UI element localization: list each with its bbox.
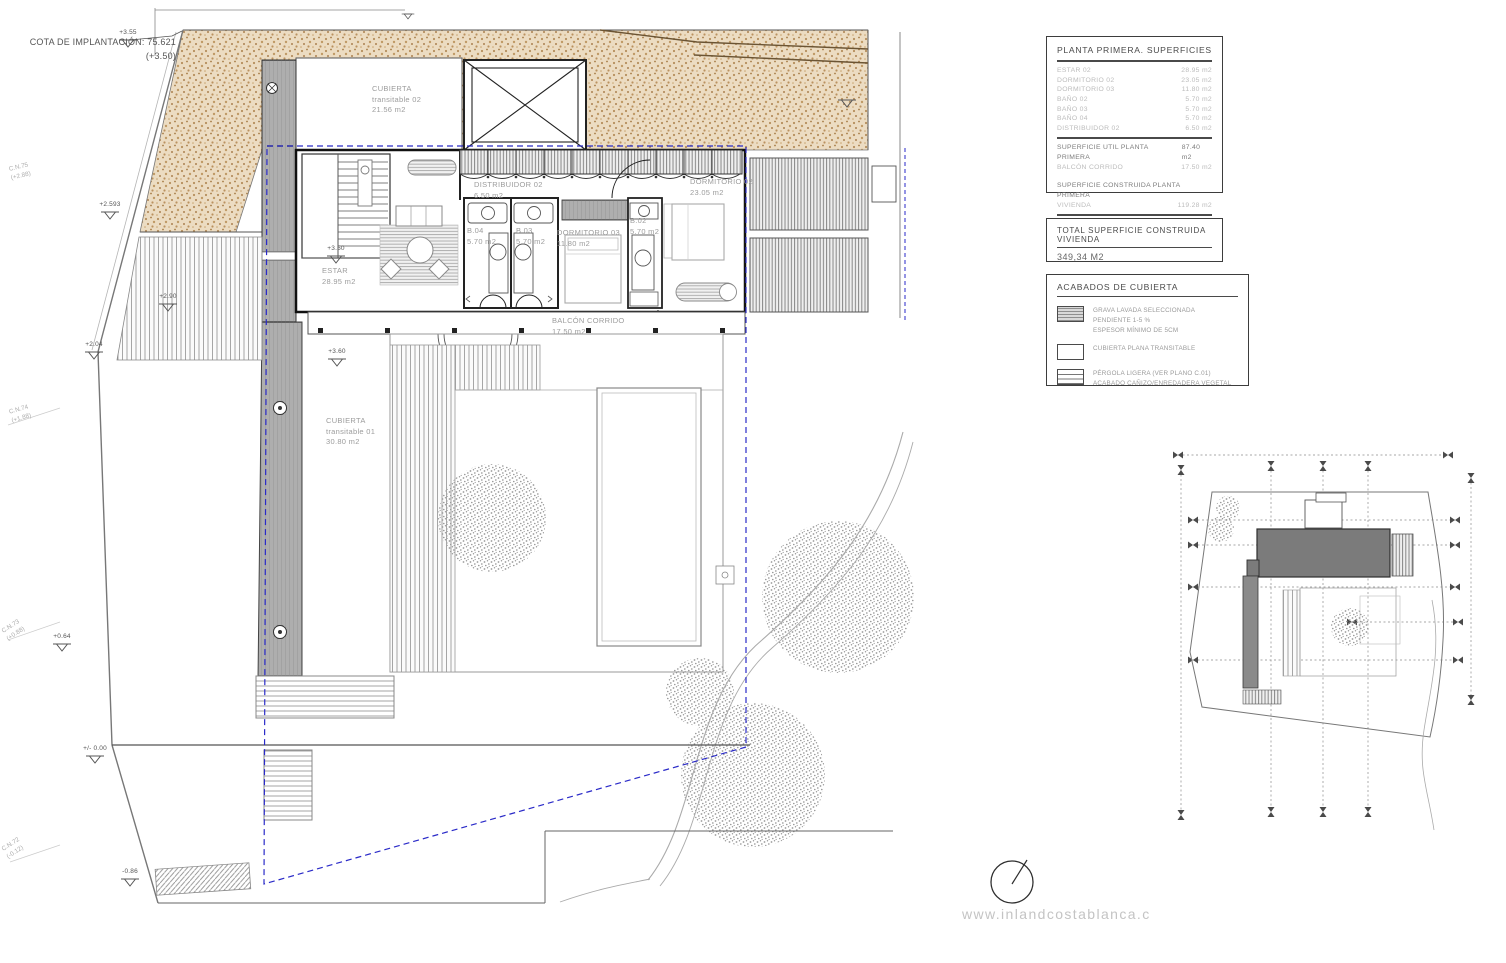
room-area: 17.50 m2: [552, 327, 625, 338]
divider: [1057, 296, 1238, 297]
row-label: ESTAR 02: [1057, 66, 1091, 76]
room-label-estar: ESTAR 28.95 m2: [322, 266, 356, 287]
pergola-band: [460, 150, 742, 179]
acabados-title: ACABADOS DE CUBIERTA: [1057, 282, 1238, 295]
table-row-vivienda: VIVIENDA119.28 m2: [1057, 201, 1212, 211]
courtyard: [390, 334, 734, 672]
table-row: BAÑO 045.70 m2: [1057, 114, 1212, 124]
total-vivienda-box: TOTAL SUPERFICIE CONSTRUIDA VIVIENDA 349…: [1046, 218, 1223, 262]
room-name: B.04: [467, 226, 496, 237]
pool: [597, 388, 701, 646]
divider: [1057, 60, 1212, 62]
room-area: 11.80 m2: [557, 239, 620, 250]
row-label: BAÑO 03: [1057, 105, 1088, 115]
cota-line2: (+3.50): [26, 50, 176, 64]
room-name: DORMITORIO 02: [690, 177, 753, 188]
tree: [681, 703, 825, 847]
row-value: 5.70 m2: [1185, 114, 1212, 124]
tree: [438, 464, 546, 572]
legend-line: GRAVA LAVADA SELECCIONADA: [1093, 306, 1195, 316]
room-name: CUBIERTA: [372, 84, 421, 95]
legend-line: ESPESOR MÍNIMO DE 5CM: [1093, 326, 1195, 336]
room-name: B.03: [516, 226, 545, 237]
room-area: 23.05 m2: [690, 188, 753, 199]
room-area: 21.56 m2: [372, 105, 421, 116]
row-value: 23.05 m2: [1181, 76, 1212, 86]
tree: [762, 521, 914, 673]
acabados-legend: ACABADOS DE CUBIERTA GRAVA LAVADA SELECC…: [1046, 274, 1249, 386]
room-name: ESTAR: [322, 266, 356, 277]
legend-line: ACABADO CAÑIZO/ENREDADERA VEGETAL: [1093, 379, 1231, 389]
legend-line: CUBIERTA PLANA TRANSITABLE: [1093, 344, 1195, 354]
room-name-2: transitable 01: [326, 427, 375, 438]
room-area: 28.95 m2: [322, 277, 356, 288]
row-label: VIVIENDA: [1057, 201, 1091, 211]
room-name: BALCÓN CORRIDO: [552, 316, 625, 327]
row-label: DORMITORIO 02: [1057, 76, 1114, 86]
table-row: DISTRIBUIDOR 026.50 m2: [1057, 124, 1212, 134]
level-label: +3.50: [314, 245, 358, 252]
row-value: 28.95 m2: [1181, 66, 1212, 76]
watermark: www.inlandcostablanca.c: [962, 906, 1151, 922]
room-label-b04: B.04 5.70 m2: [467, 226, 496, 247]
room-name: B.02: [630, 216, 659, 227]
legend-item-grava: GRAVA LAVADA SELECCIONADA PENDIENTE 1-5 …: [1057, 306, 1238, 335]
table-row-util: SUPERFICIE UTIL PLANTA PRIMERA87.40 m2: [1057, 143, 1212, 162]
table-row: ESTAR 0228.95 m2: [1057, 66, 1212, 76]
room-area: 5.70 m2: [467, 237, 496, 248]
level-label: +3.60: [315, 348, 359, 355]
room-label-distribuidor-02: DISTRIBUIDOR 02 6.50 m2: [474, 180, 543, 201]
row-value: 87.40 m2: [1182, 143, 1212, 162]
level-label: +/- 0.00: [73, 745, 117, 752]
room-label-b03: B.03 5.70 m2: [516, 226, 545, 247]
table-row: DORMITORIO 0223.05 m2: [1057, 76, 1212, 86]
cota-line1: COTA DE IMPLANTACIÓN: 75.621: [26, 36, 176, 50]
legend-item-cubierta-plana: CUBIERTA PLANA TRANSITABLE: [1057, 344, 1238, 360]
divider: [1057, 214, 1212, 216]
row-label: BAÑO 02: [1057, 95, 1088, 105]
total-vivienda-title: TOTAL SUPERFICIE CONSTRUIDA VIVIENDA: [1057, 226, 1212, 248]
row-value: 5.70 m2: [1185, 95, 1212, 105]
plan-drawing: [0, 0, 1506, 963]
bedroom-03: [562, 200, 628, 303]
row-label: BALCÓN CORRIDO: [1057, 163, 1123, 173]
room-label-cubierta-01: CUBIERTA transitable 01 30.80 m2: [326, 416, 375, 448]
divider: [1057, 137, 1212, 139]
key-site-plan: [1173, 452, 1475, 831]
row-value: 11.80 m2: [1182, 85, 1212, 95]
table-row-balcon: BALCÓN CORRIDO17.50 m2: [1057, 163, 1212, 173]
level-label: +2.90: [146, 293, 190, 300]
table-row: BAÑO 035.70 m2: [1057, 105, 1212, 115]
construida-header: SUPERFICIE CONSTRUIDA PLANTA PRIMERA: [1057, 181, 1212, 200]
row-label: DISTRIBUIDOR 02: [1057, 124, 1120, 134]
room-label-balcon-corrido: BALCÓN CORRIDO 17.50 m2: [552, 316, 625, 337]
level-label: +2.04: [72, 341, 116, 348]
superficies-title: PLANTA PRIMERA. SUPERFICIES: [1057, 45, 1212, 58]
north-indicator-icon: [991, 860, 1033, 903]
row-value: 5.70 m2: [1185, 105, 1212, 115]
room-label-cubierta-02: CUBIERTA transitable 02 21.56 m2: [372, 84, 421, 116]
room-area: 5.70 m2: [630, 227, 659, 238]
row-value: 6.50 m2: [1185, 124, 1212, 134]
room-label-dormitorio-02: DORMITORIO 02 23.05 m2: [690, 177, 753, 198]
level-label: +3.55: [106, 29, 150, 36]
room-name: DORMITORIO 03: [557, 228, 620, 239]
key-building: [1257, 529, 1390, 577]
row-value: 119.28 m2: [1178, 201, 1212, 211]
level-label: +0.64: [40, 633, 84, 640]
room-name: DISTRIBUIDOR 02: [474, 180, 543, 191]
room-area: 30.80 m2: [326, 437, 375, 448]
table-row: BAÑO 025.70 m2: [1057, 95, 1212, 105]
room-label-b02: B.02 5.70 m2: [630, 216, 659, 237]
total-vivienda-value: 349,34 M2: [1057, 252, 1212, 262]
legend-line: PENDIENTE 1-5 %: [1093, 316, 1195, 326]
plan-sheet: COTA DE IMPLANTACIÓN: 75.621 (+3.50) +3.…: [0, 0, 1506, 963]
room-name: CUBIERTA: [326, 416, 375, 427]
row-label: BAÑO 04: [1057, 114, 1088, 124]
staircase: [302, 154, 390, 258]
room-name-2: transitable 02: [372, 95, 421, 106]
table-row: DORMITORIO 0311.80 m2: [1057, 85, 1212, 95]
room-area: 5.70 m2: [516, 237, 545, 248]
superficies-table: PLANTA PRIMERA. SUPERFICIES ESTAR 0228.9…: [1046, 36, 1223, 193]
plain-roof-swatch-icon: [1057, 344, 1084, 360]
gravel-swatch-icon: [1057, 306, 1084, 322]
row-value: 17.50 m2: [1181, 163, 1212, 173]
skylight: [464, 60, 586, 150]
room-area: 6.50 m2: [474, 191, 543, 202]
cota-implantacion: COTA DE IMPLANTACIÓN: 75.621 (+3.50): [26, 36, 176, 63]
driveway-strip: [258, 322, 302, 680]
legend-line: PÉRGOLA LIGERA (VER PLANO C.01): [1093, 369, 1231, 379]
exterior-steps: [256, 676, 394, 820]
row-label: SUPERFICIE UTIL PLANTA PRIMERA: [1057, 143, 1182, 162]
level-label: +2.593: [88, 201, 132, 208]
row-label: DORMITORIO 03: [1057, 85, 1114, 95]
legend-item-pergola: PÉRGOLA LIGERA (VER PLANO C.01) ACABADO …: [1057, 369, 1238, 389]
level-label: -0.86: [108, 868, 152, 875]
pergola-swatch-icon: [1057, 369, 1084, 385]
room-label-dormitorio-03: DORMITORIO 03 11.80 m2: [557, 228, 620, 249]
